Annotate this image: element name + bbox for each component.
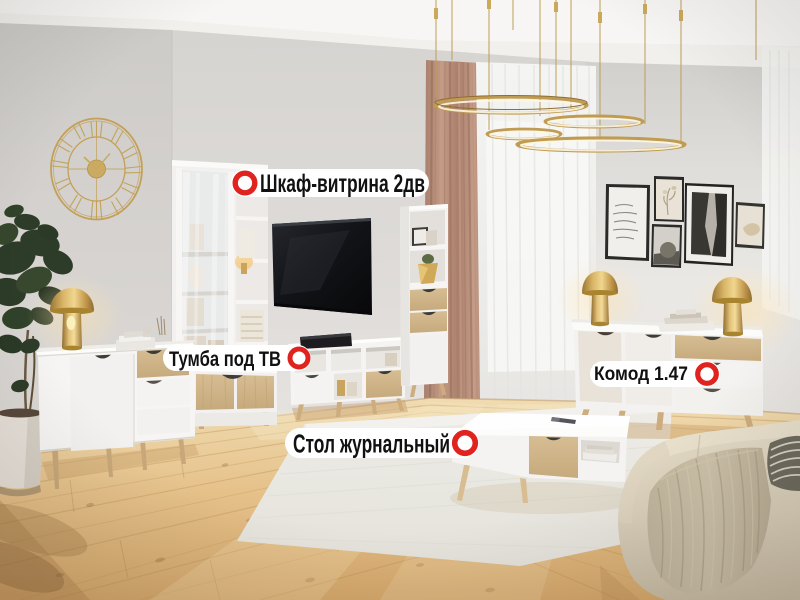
svg-text:Комод 1.47: Комод 1.47 <box>594 363 688 385</box>
svg-text:Тумба под ТВ: Тумба под ТВ <box>169 347 281 371</box>
svg-text:Стол журнальный: Стол журнальный <box>293 429 450 459</box>
svg-text:Шкаф-витрина 2дв: Шкаф-витрина 2дв <box>260 170 425 198</box>
